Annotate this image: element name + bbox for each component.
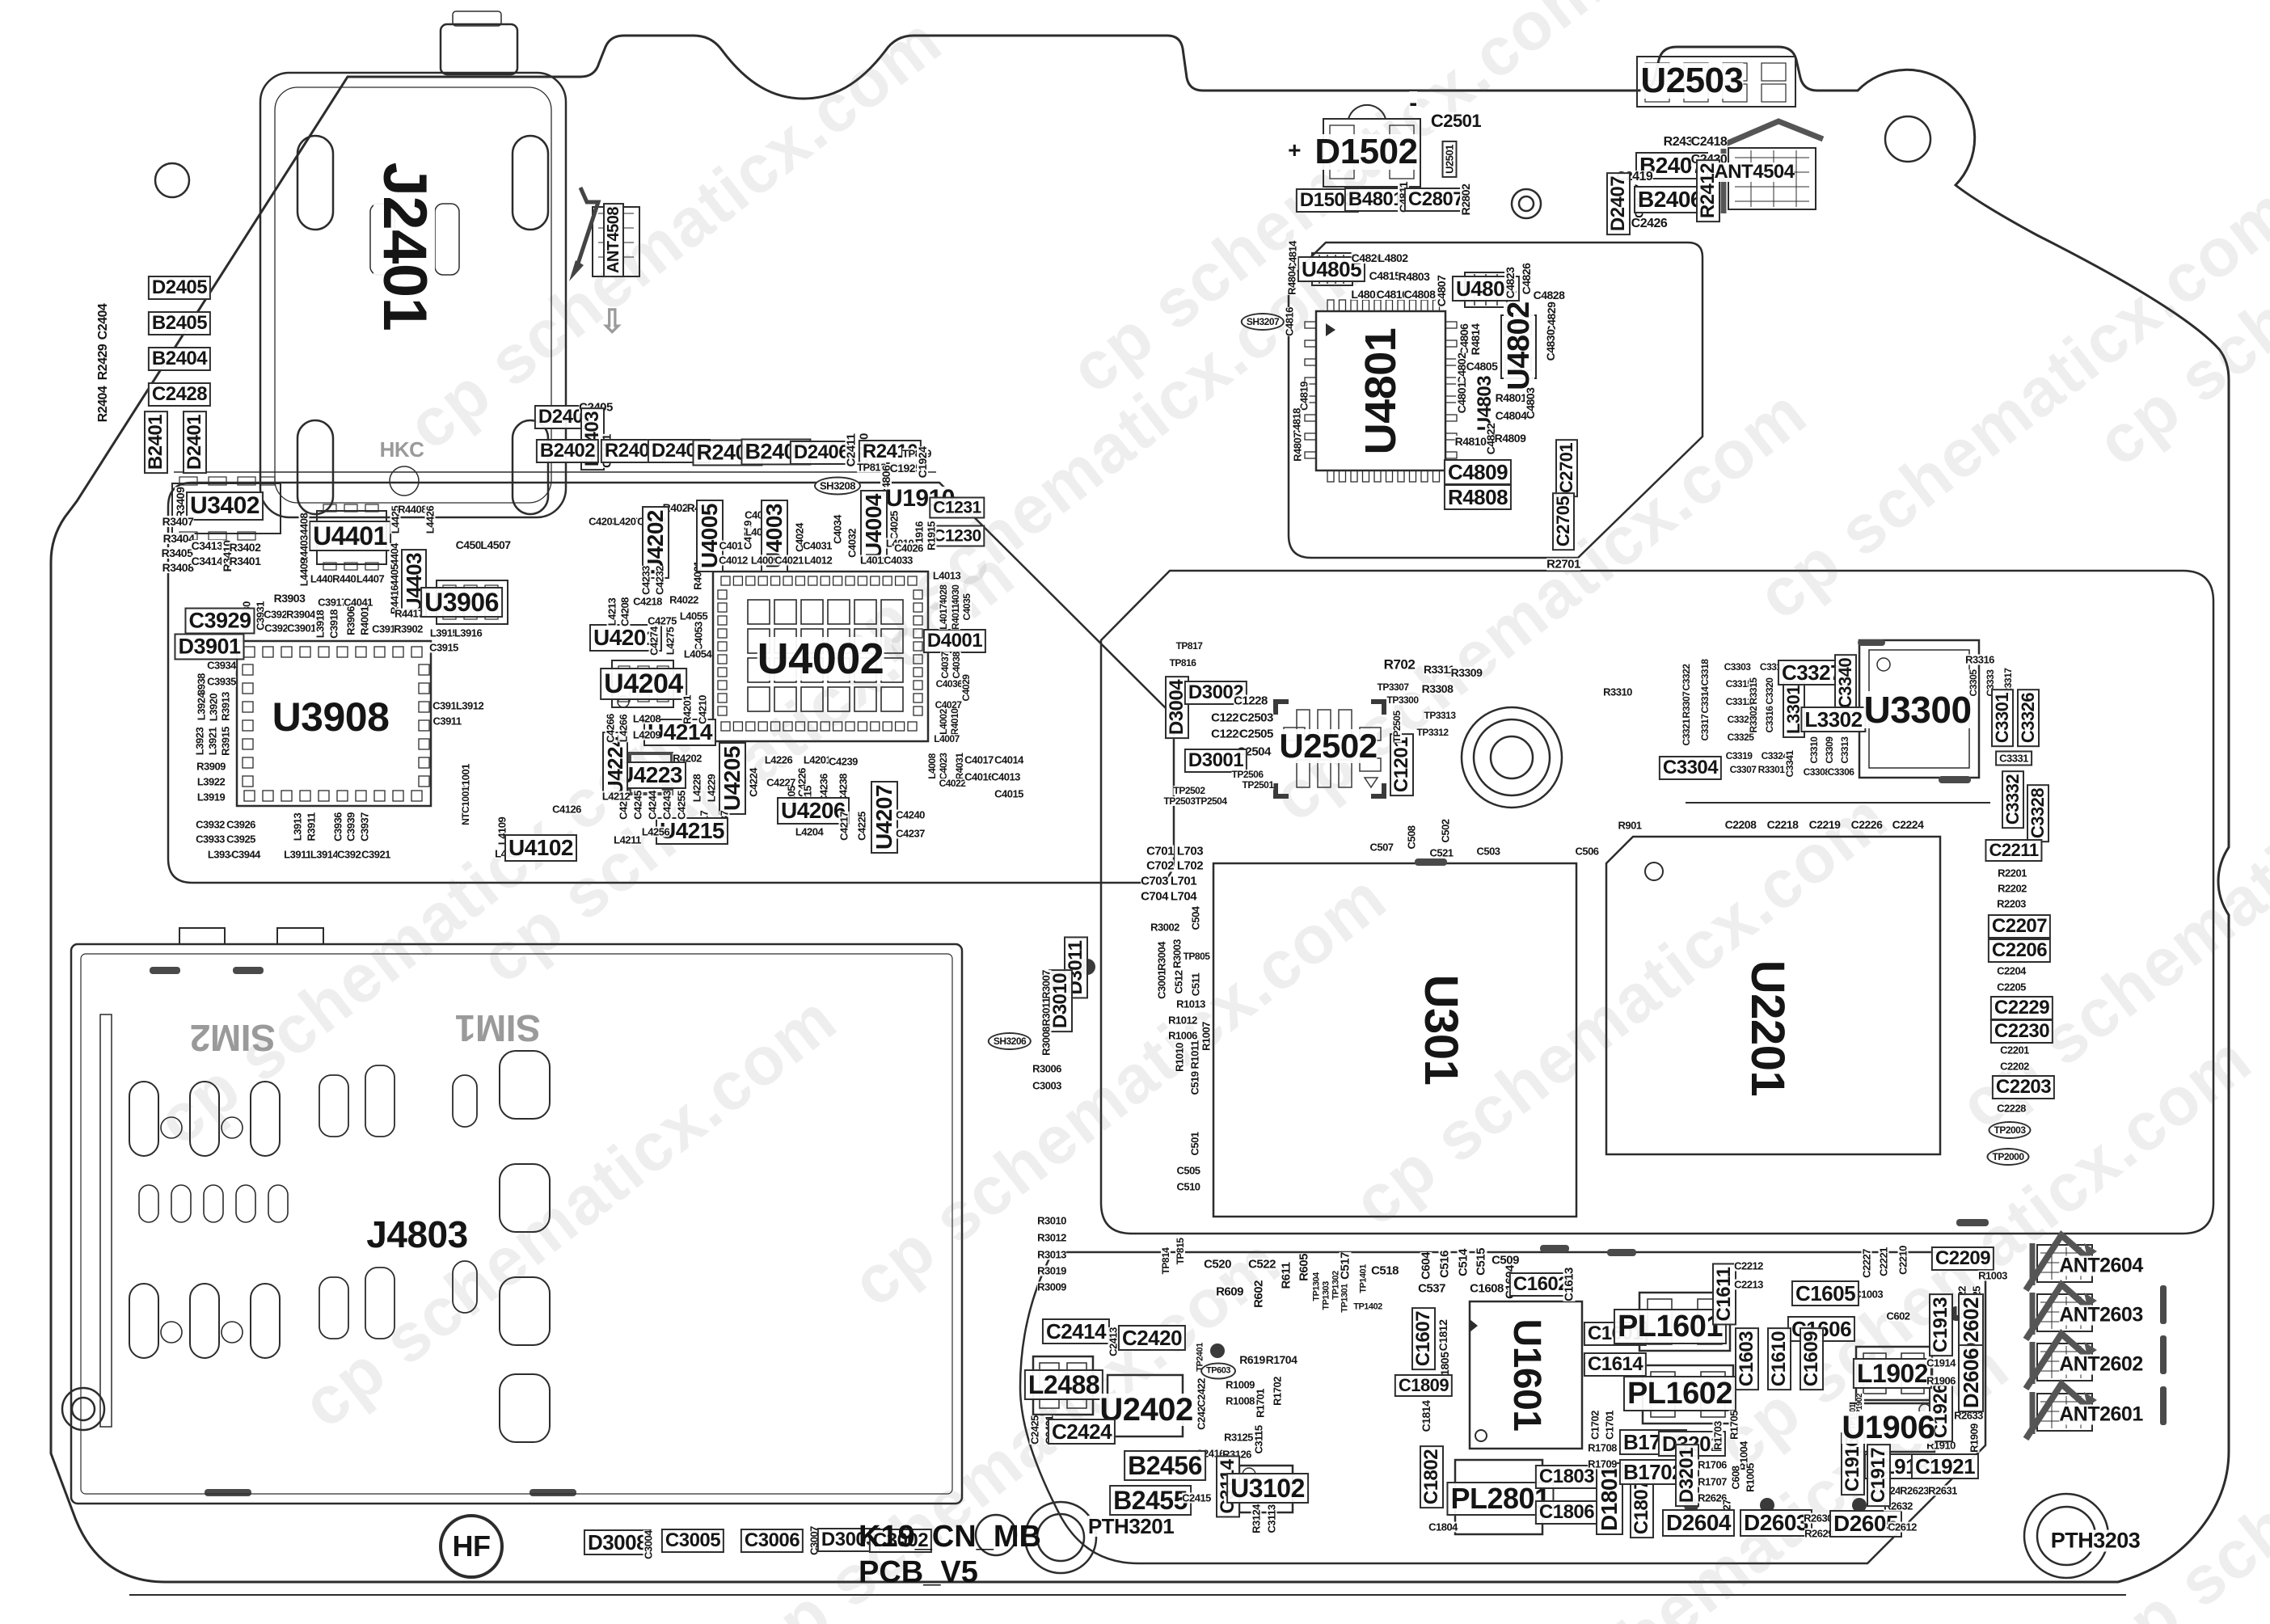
ref-label-C1605: C1605 <box>1791 1280 1859 1306</box>
ref-label-TP1301: TP1301 <box>1341 1284 1350 1313</box>
ref-label-C1614: C1614 <box>1584 1352 1647 1377</box>
ref-label-C2203: C2203 <box>1992 1075 2055 1099</box>
ref-label-C2206: C2206 <box>1988 939 2051 963</box>
ref-label-C2418: C2418 <box>1691 136 1728 149</box>
ref-label-C4232: C4232 <box>655 566 665 595</box>
ref-label-R1707: R1707 <box>1698 1477 1727 1487</box>
ref-label-C505: C505 <box>1176 1166 1200 1176</box>
ref-label-C4026: C4026 <box>894 543 923 554</box>
ref-label-C1610: C1610 <box>1767 1327 1791 1390</box>
ref-label-R4804: R4804 <box>1287 266 1297 295</box>
ref-label-C2424: C2424 <box>1048 1419 1116 1445</box>
ref-label-C3918: C3918 <box>329 610 340 639</box>
ref-label-ANT2601: ANT2601 <box>2059 1405 2143 1425</box>
ref-label-R3019: R3019 <box>1037 1266 1066 1276</box>
ref-label-ANT2604: ANT2604 <box>2059 1256 2143 1276</box>
ref-label-R3012: R3012 <box>1037 1233 1066 1243</box>
ref-label-C4240: C4240 <box>896 810 925 820</box>
ref-label-D2604: D2604 <box>1662 1509 1735 1537</box>
ref-label-D2603: D2603 <box>1740 1509 1812 1537</box>
ref-label-C2230: C2230 <box>1990 1019 2053 1044</box>
ref-label-U1601: U1601 <box>1507 1319 1546 1432</box>
ref-label-L4507: L4507 <box>480 539 510 550</box>
ref-label-C4244: C4244 <box>648 791 658 820</box>
ref-label-R3911: R3911 <box>306 812 317 841</box>
ref-label-R3004: R3004 <box>1157 942 1167 971</box>
u2201-pin1-dot <box>1645 863 1663 880</box>
ref-label-TP2003: TP2003 <box>1988 1121 2031 1139</box>
ref-label-L4211: L4211 <box>614 835 641 846</box>
hf-cert-mark: HF <box>449 1529 495 1563</box>
ref-label-R4807: R4807 <box>1293 432 1303 462</box>
ref-label-C3332: C3332 <box>2002 770 2024 829</box>
ref-label-TP805: TP805 <box>1184 951 1210 961</box>
ref-label-TP1303: TP1303 <box>1323 1281 1331 1310</box>
ref-label-U4207: U4207 <box>871 781 898 854</box>
ref-label-TP2506: TP2506 <box>1231 770 1263 779</box>
ref-label-C4022: C4022 <box>939 778 966 788</box>
ref-label-C2411: C2411 <box>846 434 858 467</box>
ref-label-L3923: L3923 <box>195 728 205 755</box>
ref-label-C3901: C3901 <box>287 623 316 634</box>
ref-label-PTH3203: PTH3203 <box>2051 1530 2141 1552</box>
ref-label-C4053: C4053 <box>694 622 704 651</box>
ref-label-C1804: C1804 <box>1428 1522 1458 1533</box>
ref-label-R3008: R3008 <box>1041 1027 1052 1056</box>
ref-label-L4201: L4201 <box>804 755 831 766</box>
ref-label-B2455: B2455 <box>1109 1485 1192 1516</box>
ref-label-U4004: U4004 <box>860 490 888 563</box>
ref-label-L4226: L4226 <box>765 755 792 766</box>
ref-label-C602: C602 <box>1886 1311 1909 1322</box>
ref-label-L702: L702 <box>1177 860 1203 872</box>
ref-label-R1703: R1703 <box>1713 1421 1724 1450</box>
ref-label-C1809: C1809 <box>1394 1374 1453 1397</box>
ref-label-R1011: R1011 <box>1190 1040 1200 1069</box>
ref-label-R3307: R3307 <box>1681 692 1691 719</box>
ref-label-R4808: R4808 <box>1444 484 1512 510</box>
ref-label-R605: R605 <box>1298 1254 1310 1281</box>
ref-label-TP816: TP816 <box>1170 658 1196 668</box>
ref-label-C3308: C3308 <box>1804 767 1830 777</box>
ref-label-C3316: C3316 <box>1765 707 1774 733</box>
ref-label-C4031: C4031 <box>803 541 832 551</box>
ref-label-C3113: C3113 <box>1267 1504 1277 1533</box>
ref-label-ANT4508: ANT4508 <box>603 203 624 277</box>
ref-label-C4025: C4025 <box>889 511 900 540</box>
ref-label-C3936: C3936 <box>333 812 344 842</box>
ref-label-C4243: C4243 <box>662 791 673 820</box>
ref-label-C4237: C4237 <box>896 829 925 839</box>
ref-label-B2402: B2402 <box>536 439 599 463</box>
ref-label-R3007: R3007 <box>1041 970 1052 999</box>
ref-label-C4810: C4810 <box>1377 289 1408 300</box>
ref-label-TP1401: TP1401 <box>1360 1264 1369 1293</box>
ref-label-C3933: C3933 <box>196 834 225 845</box>
ref-label-R3311: R3311 <box>1424 664 1454 675</box>
ref-label-C1814: C1814 <box>1420 1401 1432 1432</box>
ref-label-U4205: U4205 <box>719 742 746 815</box>
ref-label-C2503: C2503 <box>1239 712 1273 724</box>
ref-label-R1005: R1005 <box>1745 1463 1756 1492</box>
ref-label-U4401: U4401 <box>309 521 391 551</box>
ref-label-R2631: R2631 <box>1928 1486 1957 1496</box>
ref-label-C3328: C3328 <box>2027 784 2049 842</box>
ref-label-TP817: TP817 <box>1176 641 1203 651</box>
ref-label-C4014: C4014 <box>994 755 1023 766</box>
ref-label-R2404: R2404 <box>97 386 110 423</box>
ref-label-C4801: C4801 <box>1456 382 1467 414</box>
ref-label-R1915: R1915 <box>926 521 937 550</box>
ref-label-C3340: C3340 <box>1834 654 1857 712</box>
ref-label-TP2502: TP2502 <box>1173 786 1205 795</box>
ref-label-C3326: C3326 <box>2017 689 2040 747</box>
ref-label-C4233: C4233 <box>641 566 652 595</box>
ref-label-L3920: L3920 <box>209 694 219 721</box>
ref-label-L4007: L4007 <box>934 734 960 744</box>
ref-label-C515: C515 <box>1475 1248 1487 1276</box>
ref-label-C4819: C4819 <box>1299 382 1310 411</box>
ref-label-R3401: R3401 <box>230 555 261 567</box>
ref-label-C1921: C1921 <box>1911 1453 1979 1479</box>
ref-label-D2405: D2405 <box>148 276 211 300</box>
ref-label-R2623: R2623 <box>1900 1486 1929 1496</box>
ref-label-C2210: C2210 <box>1898 1246 1909 1275</box>
ref-label-R1013: R1013 <box>1176 999 1205 1010</box>
ref-label-R3310: R3310 <box>1603 687 1632 698</box>
ref-label-C1230: C1230 <box>929 525 985 547</box>
camera-hole <box>1462 707 1562 808</box>
ref-label-C3004: C3004 <box>643 1530 654 1559</box>
ref-label-D1502: D1502 <box>1314 134 1417 170</box>
ref-label-L3912: L3912 <box>456 701 483 711</box>
ref-label-C506: C506 <box>1575 846 1598 857</box>
ref-label-R3009: R3009 <box>1037 1282 1066 1293</box>
ref-label-R1708: R1708 <box>1588 1443 1617 1453</box>
ref-label-C3317: C3317 <box>1700 715 1710 741</box>
ref-label-C507: C507 <box>1369 842 1393 853</box>
ref-label-PTH3201: PTH3201 <box>1088 1516 1174 1537</box>
ref-label-C1607: C1607 <box>1411 1307 1436 1370</box>
ref-label-C2202: C2202 <box>2000 1061 2029 1072</box>
ref-label-R3903: R3903 <box>274 593 306 604</box>
ref-label-C1608: C1608 <box>1470 1283 1504 1295</box>
ref-label-L4228: L4228 <box>692 774 703 802</box>
ref-label-R3011: R3011 <box>1041 998 1052 1026</box>
ref-label-R3002: R3002 <box>1150 922 1179 933</box>
ref-label-C2404: C2404 <box>97 304 110 340</box>
ref-label-R4408: R4408 <box>398 504 427 515</box>
ref-label-TP3312: TP3312 <box>1416 728 1448 737</box>
u1601-mark <box>1470 1319 1478 1332</box>
ref-label-C4021: C4021 <box>774 555 804 566</box>
ref-label-C4804: C4804 <box>1496 410 1527 421</box>
ref-label-R3301: R3301 <box>1758 765 1785 774</box>
ref-label-C4830: C4830 <box>1545 330 1556 361</box>
ref-label--: - <box>1409 91 1417 116</box>
ref-label-R4022: R4022 <box>669 595 698 605</box>
ref-label-R4001: R4001 <box>360 606 370 635</box>
ref-label-R3902: R3902 <box>394 624 423 635</box>
ref-label-R1007: R1007 <box>1201 1022 1212 1051</box>
ref-label-D2606: D2606 <box>1958 1344 1984 1412</box>
ref-label-C4017: C4017 <box>964 755 994 766</box>
ref-label-L2488: L2488 <box>1024 1369 1103 1400</box>
ref-label-C2224: C2224 <box>1892 819 1924 830</box>
ref-label-TP603: TP603 <box>1200 1363 1236 1380</box>
ref-label-SH3207: SH3207 <box>1241 313 1285 331</box>
ref-label-C3301: C3301 <box>1991 689 2014 747</box>
ref-label-L3911: L3911 <box>284 850 311 860</box>
ref-label-L3922: L3922 <box>197 777 225 787</box>
ref-label-U4102: U4102 <box>504 834 577 862</box>
ref-label-L4055: L4055 <box>680 611 707 622</box>
ref-label-R4010: R4010 <box>950 709 960 736</box>
ref-label-C3934: C3934 <box>207 660 236 671</box>
ref-label-R3316: R3316 <box>1965 655 1994 665</box>
ref-label-R901: R901 <box>1618 820 1641 831</box>
ref-label-C522: C522 <box>1248 1259 1276 1271</box>
ref-label-C4012: C4012 <box>719 555 748 566</box>
ref-label-SH3208: SH3208 <box>814 477 861 496</box>
ref-label-SIM2: SIM2 <box>190 1019 275 1057</box>
ref-label-R1003: R1003 <box>1978 1271 2007 1281</box>
ref-label-L4275: L4275 <box>665 627 676 655</box>
ref-label-L704: L704 <box>1171 891 1196 903</box>
ref-label-C2208: C2208 <box>1725 819 1757 830</box>
ref-label-C510: C510 <box>1176 1182 1200 1192</box>
ref-label-C4029: C4029 <box>961 675 971 702</box>
ref-label-U2201: U2201 <box>1744 960 1791 1096</box>
ref-label-D3010: D3010 <box>1049 969 1073 1032</box>
ref-label-L4409: L4409 <box>299 559 310 586</box>
ref-label-C4023: C4023 <box>939 753 948 780</box>
ref-label-TP3307: TP3307 <box>1377 682 1408 692</box>
ref-label-U4002: U4002 <box>757 637 884 681</box>
ref-label-R1008: R1008 <box>1226 1396 1255 1407</box>
ref-label-C4015: C4015 <box>994 789 1023 799</box>
ref-label-C520: C520 <box>1204 1259 1231 1271</box>
ref-label-U2501: U2501 <box>1442 141 1458 178</box>
ref-label-R3302: R3302 <box>1749 707 1758 733</box>
ref-label-L4054: L4054 <box>684 649 711 660</box>
ref-label-L4209: L4209 <box>633 730 660 740</box>
ref-label-TP3313: TP3313 <box>1424 711 1455 720</box>
ref-label-ANT2602: ANT2602 <box>2059 1355 2143 1375</box>
ref-label-U3402: U3402 <box>186 491 264 521</box>
ref-label-TP2504: TP2504 <box>1195 796 1226 806</box>
ref-label-C2219: C2219 <box>1809 819 1841 830</box>
ref-label-J4803: J4803 <box>366 1216 467 1253</box>
ref-label-D2407: D2407 <box>1606 172 1631 235</box>
ref-label-R4803: R4803 <box>1399 271 1430 282</box>
ref-label-L4208: L4208 <box>633 714 660 724</box>
ref-label-C1924: C1924 <box>917 447 928 479</box>
ref-label-R3402: R3402 <box>230 542 261 553</box>
ref-label-⇩: ⇩ <box>598 306 625 338</box>
ref-label-R1012: R1012 <box>1168 1015 1197 1026</box>
ref-label-R3904: R3904 <box>286 610 315 620</box>
ref-label-C2414: C2414 <box>1042 1318 1110 1344</box>
ref-label-C517: C517 <box>1340 1252 1352 1280</box>
ref-label-C3341: C3341 <box>1785 751 1795 778</box>
ref-label-SIM1: SIM1 <box>455 1010 540 1047</box>
ref-label-B2401: B2401 <box>144 411 168 474</box>
ref-label-D3201: D3201 <box>1675 1444 1699 1507</box>
ref-label-C501: C501 <box>1190 1132 1200 1155</box>
ref-label-C537: C537 <box>1418 1283 1445 1295</box>
ref-label-B2456: B2456 <box>1124 1450 1206 1481</box>
ref-label-C3314: C3314 <box>1700 687 1710 714</box>
ref-label-R3407: R3407 <box>162 516 194 527</box>
ref-label-C514: C514 <box>1458 1249 1470 1276</box>
ref-label-L3913: L3913 <box>293 813 303 841</box>
ref-label-C3320: C3320 <box>1765 678 1774 705</box>
ref-label-C2211: C2211 <box>1985 839 2042 862</box>
ref-label-C4208: C4208 <box>620 597 631 626</box>
ref-label-U2502: U2502 <box>1279 729 1377 763</box>
ref-label-C4828: C4828 <box>1534 289 1565 301</box>
ref-label-C3929: C3929 <box>184 608 255 635</box>
ref-label-R3408: R3408 <box>162 562 194 573</box>
ref-label-TP2000: TP2000 <box>1986 1148 2029 1166</box>
ref-label-C1201: C1201 <box>1390 733 1414 796</box>
ref-label-TP1402: TP1402 <box>1353 1303 1382 1312</box>
ref-label-C2422: C2422 <box>1196 1378 1207 1407</box>
ref-label-R2429: R2429 <box>97 344 110 381</box>
ref-label-C2221: C2221 <box>1879 1247 1889 1276</box>
ref-label-R1009: R1009 <box>1226 1380 1255 1390</box>
ref-label-U4801: U4801 <box>1359 328 1403 455</box>
ref-label-C3414: C3414 <box>192 555 223 567</box>
ref-label-C3322: C3322 <box>1681 664 1691 691</box>
ref-label-TP3300: TP3300 <box>1386 695 1418 705</box>
ref-label-TP2501: TP2501 <box>1242 780 1273 790</box>
ref-label-C4217: C4217 <box>839 812 850 841</box>
ref-label-C3944: C3944 <box>231 850 260 860</box>
ref-label-C3309: C3309 <box>1825 737 1834 764</box>
ref-label-R3010: R3010 <box>1037 1216 1066 1226</box>
ref-label-C4275: C4275 <box>648 616 677 626</box>
ref-label-C3005: C3005 <box>661 1529 724 1553</box>
ref-label-R1705: R1705 <box>1729 1411 1740 1440</box>
ref-label-L701: L701 <box>1171 875 1196 888</box>
ref-label-U3908: U3908 <box>272 697 390 737</box>
ref-label-C3932: C3932 <box>196 820 225 830</box>
ref-label-C3325: C3325 <box>1728 732 1754 742</box>
ref-label-C3001: C3001 <box>1157 970 1167 999</box>
ref-label-C3305: C3305 <box>1968 670 1978 697</box>
ref-label-C3115: C3115 <box>1254 1425 1264 1453</box>
ref-label-L4002: L4002 <box>939 709 948 735</box>
ref-label-R4801: R4801 <box>1496 392 1527 403</box>
ref-label-C3306: C3306 <box>1828 767 1854 777</box>
ref-label-C2612: C2612 <box>1888 1522 1917 1533</box>
ref-label-R1706: R1706 <box>1698 1460 1727 1470</box>
ref-label-C2229: C2229 <box>1990 996 2053 1020</box>
ref-label-C2227: C2227 <box>1862 1249 1872 1278</box>
ref-label-C2204: C2204 <box>1997 966 2026 977</box>
ref-label-B2404: B2404 <box>148 347 211 371</box>
ref-label-C2505: C2505 <box>1239 728 1273 740</box>
ref-label-L4204: L4204 <box>795 827 823 837</box>
ref-label-L4802: L4802 <box>1378 252 1407 264</box>
ref-label-C2228: C2228 <box>1997 1103 2026 1114</box>
ref-label-L4266: L4266 <box>618 715 629 742</box>
ref-label-C4032: C4032 <box>847 529 858 558</box>
ref-label-C3915: C3915 <box>429 643 458 653</box>
ref-label-C503: C503 <box>1476 846 1500 857</box>
ref-label-R3906: R3906 <box>346 606 357 635</box>
ref-label-L4256: L4256 <box>642 827 669 837</box>
ref-label-C4823: C4823 <box>1504 268 1516 299</box>
ref-label-C2415: C2415 <box>1182 1493 1211 1504</box>
ref-label-L4426: L4426 <box>425 506 436 534</box>
ref-label-R2701: R2701 <box>1546 559 1580 571</box>
ref-label-C3937: C3937 <box>360 812 370 842</box>
ref-label-U4802: U4802 <box>1504 302 1534 390</box>
ref-label-L3916: L3916 <box>454 628 482 639</box>
ref-label-C4036: C4036 <box>936 679 963 689</box>
ref-label-C2425: C2425 <box>1030 1415 1040 1445</box>
ref-label-R4417: R4417 <box>395 609 424 619</box>
ref-label-R702: R702 <box>1384 658 1416 672</box>
ref-label-C3319: C3319 <box>1726 751 1753 761</box>
ref-label-C3303: C3303 <box>1724 662 1751 672</box>
ref-label-R2802: R2802 <box>1460 184 1471 216</box>
ref-label-R602: R602 <box>1253 1280 1265 1308</box>
ref-label-R2203: R2203 <box>1997 899 2026 909</box>
ref-label-C1611: C1611 <box>1712 1263 1736 1326</box>
ref-label-C1228: C1228 <box>1234 695 1268 707</box>
ref-label-TP2503: TP2503 <box>1163 796 1195 806</box>
ref-label-U3906: U3906 <box>420 587 503 618</box>
ref-label-C521: C521 <box>1429 848 1453 858</box>
ref-label-U2503: U2503 <box>1640 63 1743 99</box>
ref-label-+: + <box>1288 139 1301 162</box>
ref-label-C4033: C4033 <box>884 555 913 566</box>
ref-label-R619: R619 <box>1239 1354 1264 1365</box>
ref-label-C4816: C4816 <box>1285 307 1295 336</box>
ref-label-C4210: C4210 <box>698 695 708 724</box>
ref-label-C1613: C1613 <box>1563 1268 1576 1301</box>
ref-label-C2428: C2428 <box>148 382 211 407</box>
ref-label-U4204: U4204 <box>600 668 687 700</box>
ref-label-C1913: C1913 <box>1929 1293 1953 1356</box>
ref-label-C508: C508 <box>1407 825 1417 849</box>
u3300-pin1-dot <box>1877 658 1890 671</box>
ref-label-C2413: C2413 <box>1108 1327 1119 1356</box>
ref-label-L3918: L3918 <box>315 610 326 638</box>
ref-label-C2209: C2209 <box>1931 1246 1994 1271</box>
ref-label-L4012: L4012 <box>804 555 832 566</box>
ref-label-C4224: C4224 <box>749 768 759 797</box>
ref-label-R1702: R1702 <box>1272 1377 1283 1406</box>
ref-label-D2401: D2401 <box>183 411 207 474</box>
ref-label-C703: C703 <box>1141 875 1168 888</box>
ref-label-C2218: C2218 <box>1767 819 1799 830</box>
ref-label-C1914: C1914 <box>1926 1358 1956 1369</box>
ref-label-C1603: C1603 <box>1735 1327 1759 1390</box>
ref-label-TP814: TP814 <box>1161 1248 1171 1275</box>
ref-label-L3924: L3924 <box>196 693 207 720</box>
ref-label-HKC: HKC <box>380 439 424 460</box>
ref-label-C2501: C2501 <box>1431 112 1481 130</box>
ref-label-L4212: L4212 <box>602 791 630 802</box>
ref-label-C1609: C1609 <box>1800 1327 1824 1390</box>
ref-label-C2226: C2226 <box>1851 819 1883 830</box>
ref-label-PL1602: PL1602 <box>1623 1376 1736 1411</box>
